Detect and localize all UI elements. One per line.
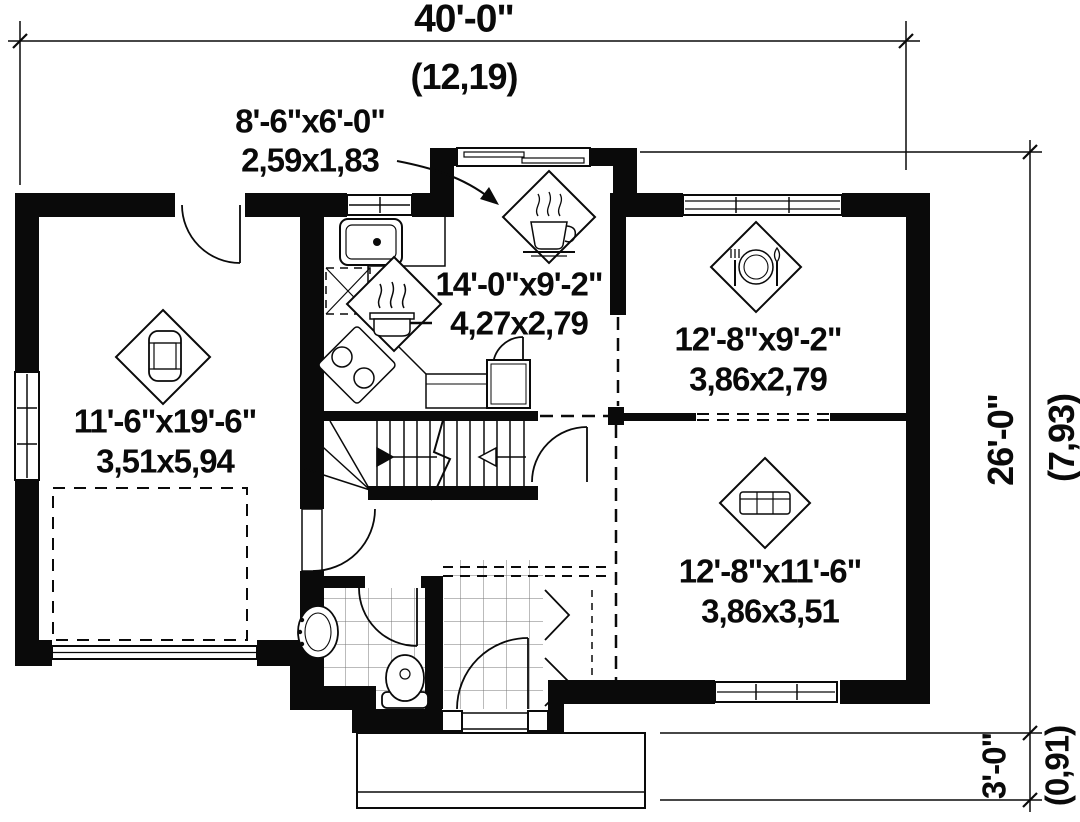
nook-sliding-window [457, 148, 590, 166]
dining-dimension-metric: 3,86x2,79 [689, 363, 827, 396]
floor-plan: 40'-0" (12,19) 8'-6"x6'-0" 2,59x1,83 14'… [0, 0, 1080, 822]
nook-dimension-metric: 2,59x1,83 [241, 144, 379, 177]
bathroom-sink [298, 606, 338, 658]
garage-top-wall-right [245, 193, 347, 217]
dining-living-wall-left [623, 413, 696, 421]
dining-dimension-feet: 12'-8"x9'-2" [674, 323, 841, 356]
sofa-icon [720, 458, 810, 548]
dining-left-wall [610, 217, 626, 315]
porch-dimension-feet: 3'-0" [978, 733, 1011, 799]
bathroom-right-wall [425, 588, 443, 709]
porch-dimension-metric: (0,91) [1041, 726, 1074, 806]
stair-bottom-wall [368, 486, 538, 500]
top-dimension-feet: 40'-0" [414, 0, 514, 39]
dining-plate-icon [711, 222, 801, 312]
stair-treads [377, 421, 524, 486]
porch [357, 733, 645, 808]
front-door-sidelights [442, 711, 548, 731]
base-cabinet [426, 374, 487, 408]
kitchen-dimension-metric: 4,27x2,79 [450, 307, 588, 340]
garage-door [52, 646, 257, 659]
living-dimension-feet: 12'-8"x11'-6" [679, 555, 862, 588]
hall-dining-door [532, 427, 587, 482]
garage-left-wall-upper [15, 193, 39, 372]
nook-dimension-feet: 8'-6"x6'-0" [235, 105, 385, 138]
living-window [715, 682, 837, 702]
nook-top-wall-left [430, 148, 457, 166]
bathroom-top-wall-left [300, 576, 365, 588]
living-bottom-wall-right [840, 680, 930, 704]
garage-side-window [15, 372, 39, 480]
stair-down-arrow [479, 448, 496, 466]
foyer-right-wall [548, 680, 564, 733]
right-exterior-wall [906, 193, 930, 704]
garage-hall-door [302, 509, 375, 571]
dining-living-wall-right [830, 413, 906, 421]
living-bottom-wall-left [560, 680, 715, 704]
kitchen-top-wall [412, 193, 430, 217]
garage-dimension-feet: 11'-6"x19'-6" [74, 405, 257, 438]
right-dimension-metric: (7,93) [1044, 394, 1080, 482]
living-dimension-metric: 3,86x3,51 [701, 595, 839, 628]
garage-left-wall-lower [15, 480, 39, 666]
car-icon [116, 310, 210, 404]
stair-top-wall [302, 411, 538, 421]
refrigerator [487, 360, 530, 408]
kitchen-window [347, 195, 412, 215]
right-dimension-feet: 26'-0" [983, 394, 1019, 486]
garage-dimension-metric: 3,51x5,94 [96, 445, 234, 478]
garage-rear-door [182, 205, 240, 263]
garage-parking-stall [53, 488, 247, 640]
dining-window [683, 195, 842, 215]
front-wall-left [352, 709, 442, 733]
bathroom-top-wall-right [421, 576, 443, 588]
kitchen-dimension-feet: 14'-0"x9'-2" [435, 268, 602, 301]
top-dimension-metric: (12,19) [410, 59, 517, 95]
coffee-cup-icon [503, 171, 595, 263]
dining-top-wall-left [610, 193, 683, 217]
